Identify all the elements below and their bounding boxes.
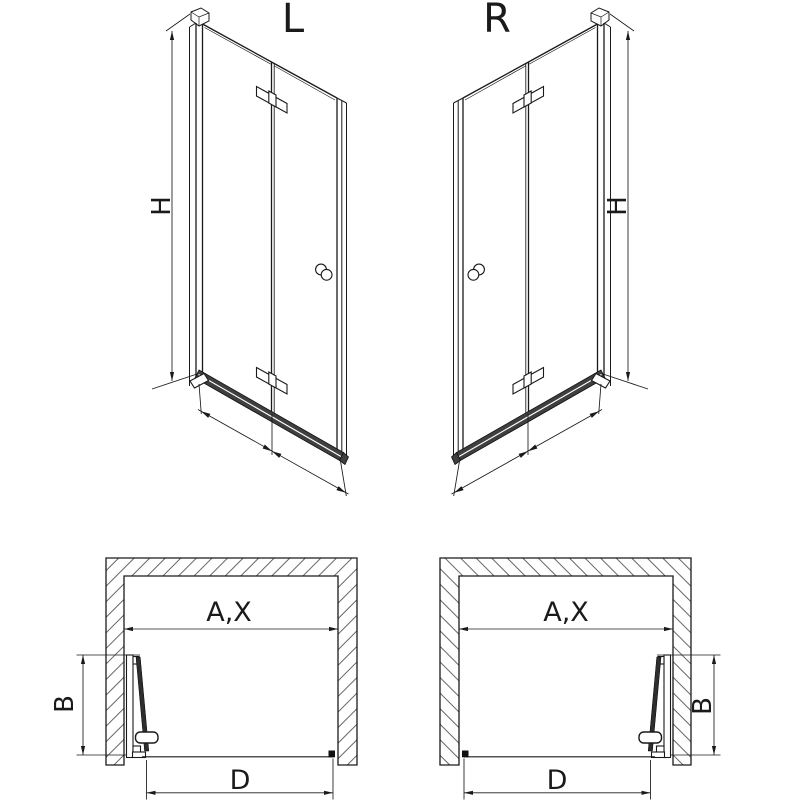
perspective-view-right bbox=[452, 8, 649, 496]
dim-label-b-right: B bbox=[688, 697, 718, 715]
dim-label-height-right: H bbox=[603, 196, 633, 216]
plan-view-right bbox=[440, 558, 721, 800]
dim-label-ax-right: A,X bbox=[543, 597, 589, 628]
plan-view-left bbox=[77, 558, 358, 800]
dim-label-d-left: D bbox=[230, 765, 251, 796]
dim-label-height-left: H bbox=[147, 196, 177, 216]
diagram-canvas: L H F E R H E F A,X B D A,X B D bbox=[0, 0, 800, 800]
variant-label-right: R bbox=[483, 0, 511, 42]
dim-label-d-right: D bbox=[547, 765, 568, 796]
dim-label-ax-left: A,X bbox=[206, 597, 252, 628]
perspective-view-left bbox=[152, 8, 349, 496]
variant-label-left: L bbox=[282, 0, 305, 42]
dim-label-b-left: B bbox=[50, 695, 80, 713]
dim-label-f-right: F bbox=[0, 0, 7, 6]
shower-door-technical-diagram: L H F E R H E F A,X B D A,X B D bbox=[0, 0, 800, 800]
